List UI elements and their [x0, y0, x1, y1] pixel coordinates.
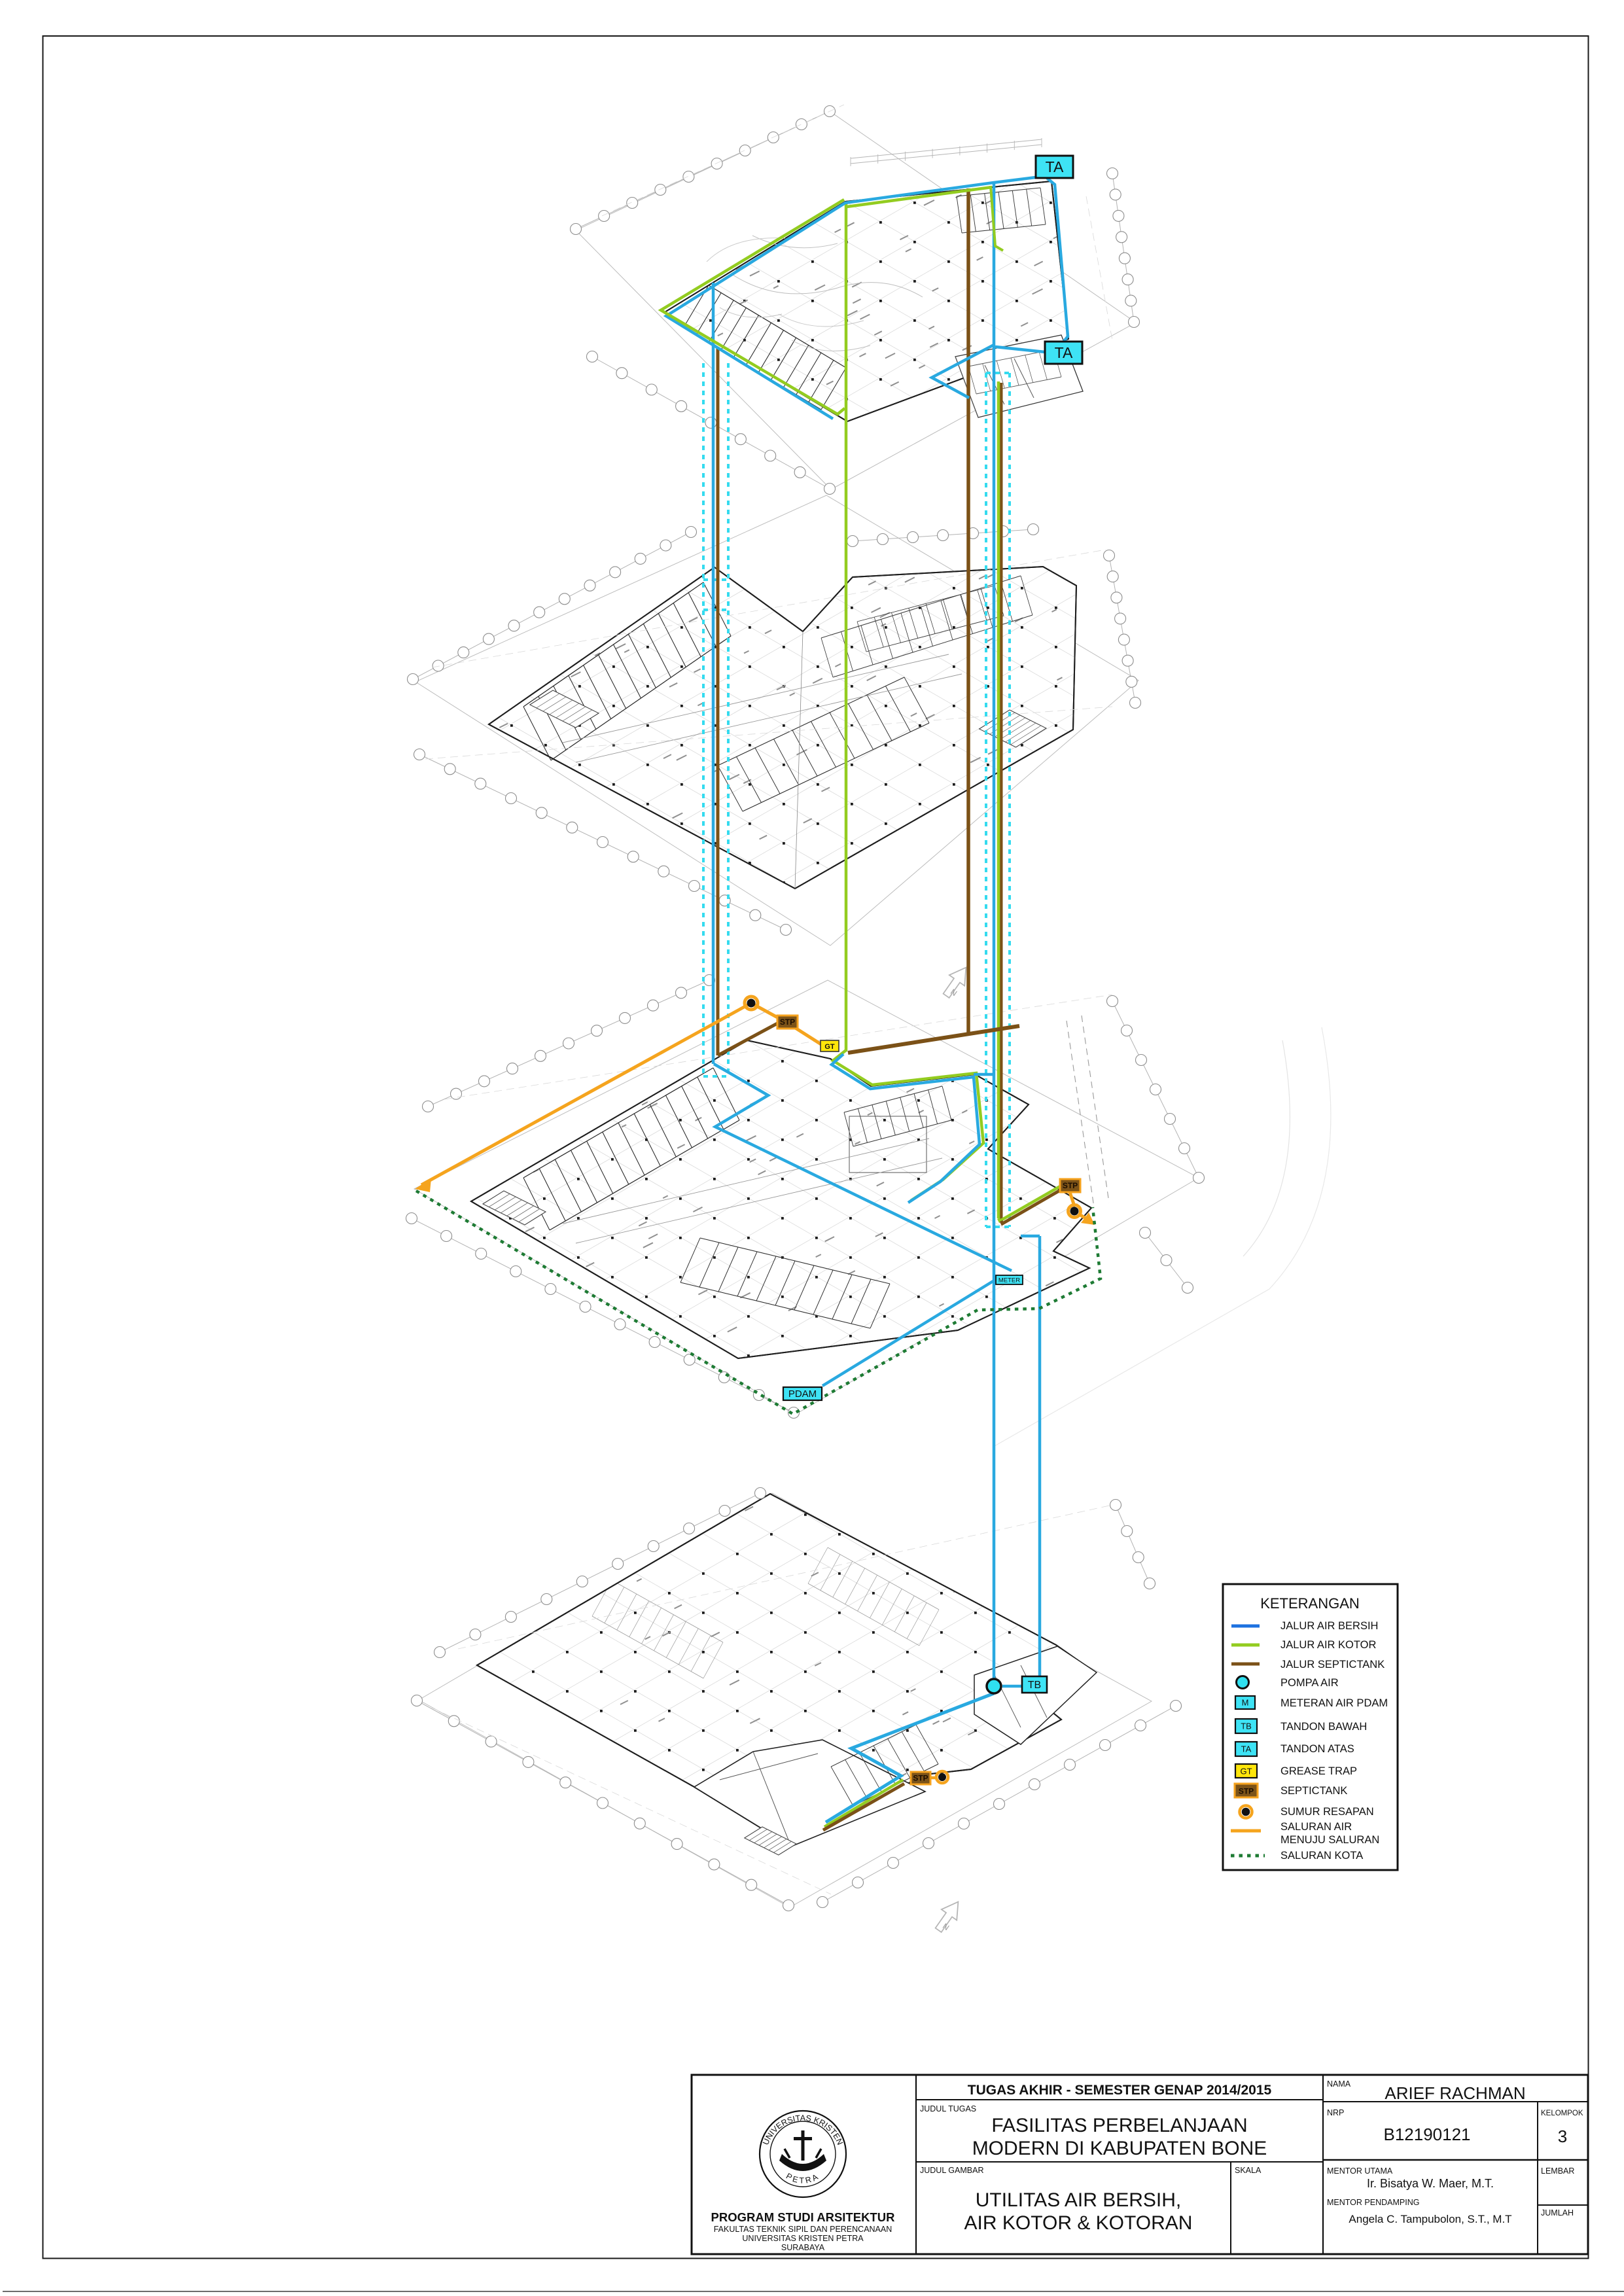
svg-text:SALURAN AIR: SALURAN AIR — [1280, 1821, 1352, 1833]
svg-text:GT: GT — [1240, 1767, 1252, 1776]
svg-text:STP: STP — [913, 1774, 928, 1783]
svg-text:JALUR AIR BERSIH: JALUR AIR BERSIH — [1280, 1620, 1378, 1632]
svg-text:UNIVERSITAS KRISTEN PETRA: UNIVERSITAS KRISTEN PETRA — [742, 2234, 864, 2243]
svg-text:3: 3 — [1558, 2127, 1567, 2146]
svg-text:TANDON BAWAH: TANDON BAWAH — [1280, 1721, 1367, 1733]
svg-text:GT: GT — [824, 1043, 835, 1051]
svg-text:TA: TA — [1241, 1744, 1252, 1754]
svg-text:PROGRAM STUDI ARSITEKTUR: PROGRAM STUDI ARSITEKTUR — [711, 2210, 895, 2224]
svg-text:ARIEF RACHMAN: ARIEF RACHMAN — [1385, 2083, 1525, 2103]
svg-text:METER: METER — [998, 1277, 1020, 1284]
svg-text:TA: TA — [1046, 158, 1064, 175]
svg-text:MENTOR PENDAMPING: MENTOR PENDAMPING — [1327, 2198, 1419, 2207]
svg-text:METERAN AIR PDAM: METERAN AIR PDAM — [1280, 1697, 1388, 1709]
svg-text:JUMLAH: JUMLAH — [1541, 2208, 1574, 2217]
svg-text:TB: TB — [1241, 1722, 1252, 1731]
svg-text:B12190121: B12190121 — [1383, 2125, 1470, 2144]
svg-text:LEMBAR: LEMBAR — [1541, 2166, 1574, 2176]
svg-text:SKALA: SKALA — [1235, 2166, 1262, 2175]
svg-text:M: M — [1242, 1698, 1249, 1708]
svg-text:FASILITAS PERBELANJAAN: FASILITAS PERBELANJAAN — [991, 2115, 1247, 2136]
svg-text:Ir. Bisatya W. Maer, M.T.: Ir. Bisatya W. Maer, M.T. — [1367, 2177, 1494, 2190]
svg-text:KETERANGAN: KETERANGAN — [1260, 1595, 1360, 1612]
svg-text:STP: STP — [1063, 1181, 1078, 1190]
svg-text:TB: TB — [1028, 1680, 1041, 1691]
svg-text:TA: TA — [1055, 344, 1073, 361]
svg-text:SURABAYA: SURABAYA — [781, 2243, 825, 2252]
svg-text:POMPA AIR: POMPA AIR — [1280, 1677, 1339, 1689]
svg-text:UTILITAS AIR BERSIH,: UTILITAS AIR BERSIH, — [976, 2189, 1182, 2211]
svg-text:TUGAS AKHIR - SEMESTER GENAP 2: TUGAS AKHIR - SEMESTER GENAP 2014/2015 — [968, 2083, 1272, 2098]
svg-text:Angela C. Tampubolon, S.T., M.: Angela C. Tampubolon, S.T., M.T — [1349, 2213, 1511, 2225]
svg-text:STP: STP — [1239, 1787, 1254, 1796]
svg-text:JALUR AIR KOTOR: JALUR AIR KOTOR — [1280, 1639, 1376, 1651]
svg-text:NRP: NRP — [1327, 2108, 1344, 2117]
svg-text:KELOMPOK: KELOMPOK — [1541, 2110, 1583, 2117]
svg-text:JUDUL GAMBAR: JUDUL GAMBAR — [920, 2166, 983, 2175]
svg-text:JALUR SEPTICTANK: JALUR SEPTICTANK — [1280, 1659, 1385, 1670]
svg-text:MENTOR UTAMA: MENTOR UTAMA — [1327, 2166, 1393, 2176]
svg-text:GREASE TRAP: GREASE TRAP — [1280, 1765, 1357, 1777]
svg-text:AIR KOTOR & KOTORAN: AIR KOTOR & KOTORAN — [964, 2212, 1193, 2234]
svg-text:JUDUL TUGAS: JUDUL TUGAS — [920, 2104, 976, 2113]
svg-text:MODERN DI KABUPATEN BONE: MODERN DI KABUPATEN BONE — [972, 2138, 1267, 2159]
svg-text:NAMA: NAMA — [1327, 2079, 1351, 2089]
svg-text:SEPTICTANK: SEPTICTANK — [1280, 1785, 1347, 1797]
svg-text:MENUJU SALURAN: MENUJU SALURAN — [1280, 1834, 1379, 1846]
svg-text:STP: STP — [780, 1017, 795, 1027]
svg-text:TANDON ATAS: TANDON ATAS — [1280, 1743, 1354, 1755]
svg-text:PDAM: PDAM — [788, 1388, 817, 1400]
svg-text:SALURAN KOTA: SALURAN KOTA — [1280, 1850, 1363, 1862]
svg-text:FAKULTAS TEKNIK SIPIL DAN PERE: FAKULTAS TEKNIK SIPIL DAN PERENCANAAN — [714, 2225, 892, 2234]
svg-text:SUMUR RESAPAN: SUMUR RESAPAN — [1280, 1806, 1374, 1818]
